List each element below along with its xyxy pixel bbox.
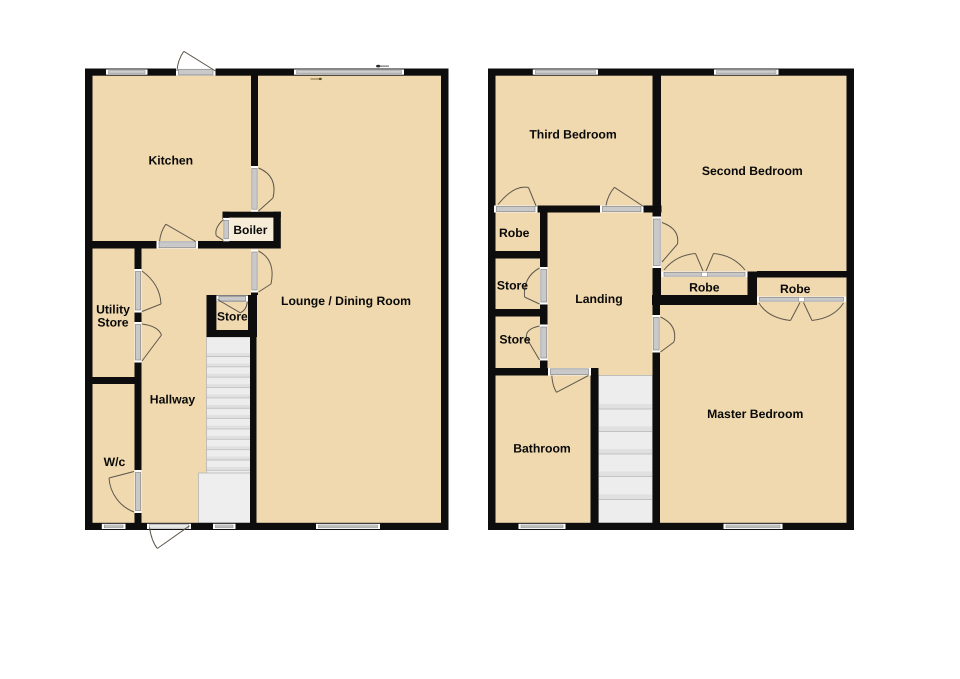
svg-text:Second Bedroom: Second Bedroom [702,164,803,178]
svg-text:Boiler: Boiler [233,223,267,237]
svg-text:Robe: Robe [780,282,811,296]
svg-text:Lounge / Dining Room: Lounge / Dining Room [281,294,411,308]
svg-text:Robe: Robe [499,226,530,240]
svg-text:Store: Store [497,279,528,293]
svg-text:Third Bedroom: Third Bedroom [529,128,617,142]
svg-text:Hallway: Hallway [150,393,196,407]
svg-text:Kitchen: Kitchen [148,154,193,168]
svg-text:W/c: W/c [104,455,126,469]
svg-text:Landing: Landing [575,292,622,306]
svg-text:Store: Store [217,309,248,323]
svg-text:Utility: Utility [96,303,130,317]
svg-text:Bathroom: Bathroom [513,442,571,456]
svg-text:Robe: Robe [689,281,720,295]
svg-text:Store: Store [97,316,128,330]
svg-text:Store: Store [499,333,530,347]
svg-text:Master Bedroom: Master Bedroom [707,407,803,421]
